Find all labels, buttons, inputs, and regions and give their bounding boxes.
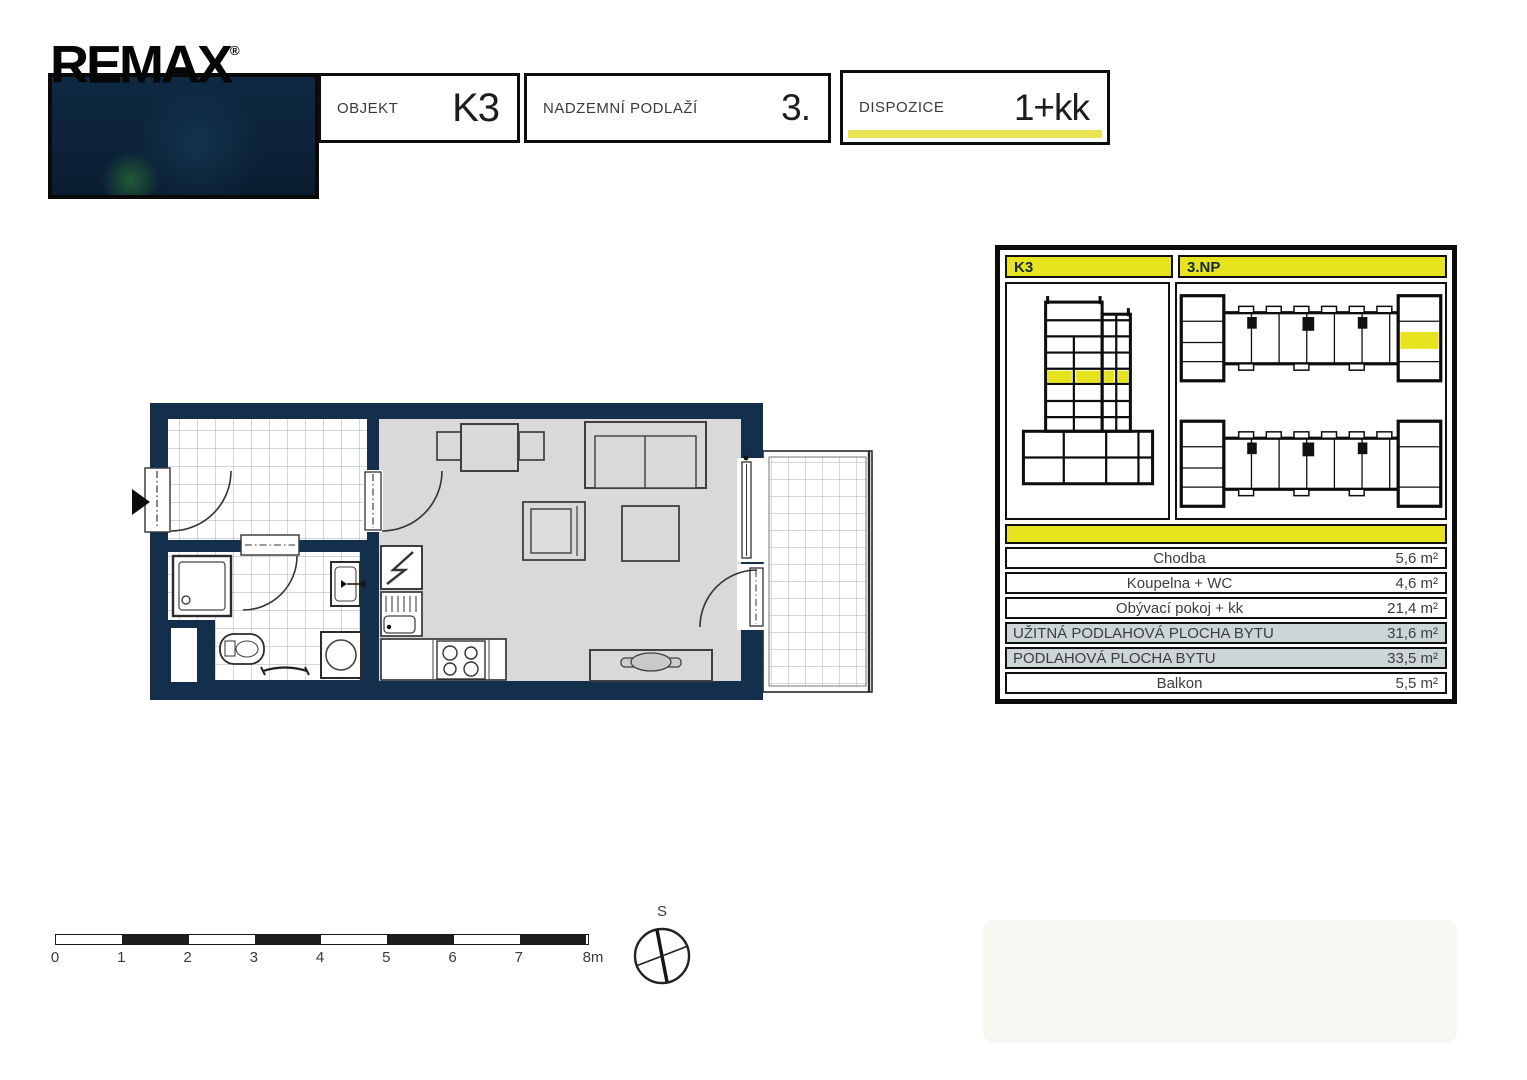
area-table-row: Koupelna + WC 4,6 m² bbox=[1005, 572, 1447, 594]
scale-tick-label: 5 bbox=[382, 949, 390, 966]
area-row-value: 4,6 m² bbox=[1352, 575, 1445, 592]
kitchen-sink-unit bbox=[381, 592, 422, 636]
scale-tick-label: 6 bbox=[448, 949, 456, 966]
header-field-dispozice: DISPOZICE 1+kk bbox=[840, 70, 1110, 145]
area-row-label: Chodba bbox=[1007, 550, 1352, 567]
compass-rose: S bbox=[626, 900, 698, 996]
field-value: 3. bbox=[781, 87, 810, 129]
toilet bbox=[220, 634, 264, 664]
washbasin bbox=[331, 562, 365, 606]
scale-ticks: 012345678m bbox=[55, 949, 589, 971]
scale-segment bbox=[520, 935, 586, 944]
washing-machine bbox=[321, 632, 361, 678]
scale-tick-label: 0 bbox=[51, 949, 59, 966]
area-row-value: 31,6 m² bbox=[1352, 625, 1445, 642]
highlighted-unit bbox=[1400, 332, 1438, 349]
remax-logo: REMAX® bbox=[50, 39, 240, 92]
field-label: OBJEKT bbox=[337, 100, 398, 117]
area-row-label: PODLAHOVÁ PLOCHA BYTU bbox=[1007, 650, 1352, 667]
armchair bbox=[523, 502, 585, 560]
apartment-floor-plan bbox=[125, 394, 877, 710]
kitchen-counter bbox=[381, 639, 506, 680]
area-table-row: Chodba 5,6 m² bbox=[1005, 547, 1447, 569]
scale-tick-label: 1 bbox=[117, 949, 125, 966]
floorplate-cell bbox=[1175, 282, 1447, 520]
area-row-label: Obývací pokoj + kk bbox=[1007, 600, 1352, 617]
floorplan-sheet: REMAX® OBJEKT K3 NADZEMNÍ PODLAŽÍ 3. DIS… bbox=[0, 0, 1527, 1080]
area-table: Chodba 5,6 m² Koupelna + WC 4,6 m² Obýva… bbox=[1005, 544, 1447, 694]
unit-info-panel: K3 3.NP bbox=[995, 245, 1457, 704]
fridge bbox=[381, 546, 422, 589]
shower bbox=[173, 556, 231, 616]
scale-segment bbox=[122, 935, 188, 944]
header-field-objekt: OBJEKT K3 bbox=[318, 73, 520, 143]
scale-bar: 012345678m bbox=[55, 934, 589, 971]
side-table bbox=[622, 506, 679, 561]
building-label-cell: K3 bbox=[1005, 255, 1173, 278]
shaft-niche bbox=[171, 628, 197, 682]
area-row-label: Koupelna + WC bbox=[1007, 575, 1352, 592]
field-value: 1+kk bbox=[1014, 87, 1089, 129]
dining-table bbox=[461, 424, 518, 471]
scale-segment bbox=[255, 935, 321, 944]
area-row-value: 33,5 m² bbox=[1352, 650, 1445, 667]
header-field-podlazi: NADZEMNÍ PODLAŽÍ 3. bbox=[524, 73, 831, 143]
scale-tick-label: 4 bbox=[316, 949, 324, 966]
chair bbox=[519, 432, 544, 460]
scale-tick-label: 7 bbox=[515, 949, 523, 966]
north-label: S bbox=[657, 903, 667, 920]
floorplate-diagrams bbox=[1177, 289, 1445, 513]
scale-segment bbox=[454, 935, 520, 944]
registered-mark: ® bbox=[230, 43, 240, 58]
faint-watermark-rect bbox=[983, 920, 1457, 1042]
area-table-row: Obývací pokoj + kk 21,4 m² bbox=[1005, 597, 1447, 619]
field-label: DISPOZICE bbox=[859, 99, 944, 116]
scale-segment bbox=[189, 935, 255, 944]
scale-segment bbox=[387, 935, 453, 944]
area-row-label: UŽITNÁ PODLAHOVÁ PLOCHA BYTU bbox=[1007, 625, 1352, 642]
balcony bbox=[763, 451, 872, 692]
field-value: K3 bbox=[452, 86, 499, 131]
window bbox=[737, 456, 765, 562]
panel-header: K3 3.NP bbox=[1005, 255, 1447, 278]
scale-tick-label: 3 bbox=[250, 949, 258, 966]
area-row-value: 5,5 m² bbox=[1352, 675, 1445, 692]
area-table-row: Balkon 5,5 m² bbox=[1005, 672, 1447, 694]
scale-tick-label: 2 bbox=[183, 949, 191, 966]
scale-segment bbox=[321, 935, 387, 944]
scale-tick-label: 8m bbox=[583, 949, 604, 966]
field-label: NADZEMNÍ PODLAŽÍ bbox=[543, 100, 698, 117]
sideboard-tv bbox=[590, 650, 712, 681]
floor-label-cell: 3.NP bbox=[1178, 255, 1447, 278]
area-row-label: Balkon bbox=[1007, 675, 1352, 692]
scale-segments bbox=[55, 934, 589, 945]
area-table-row: PODLAHOVÁ PLOCHA BYTU 33,5 m² bbox=[1005, 647, 1447, 669]
area-row-value: 5,6 m² bbox=[1352, 550, 1445, 567]
sofa bbox=[585, 422, 706, 488]
area-row-value: 21,4 m² bbox=[1352, 600, 1445, 617]
chair bbox=[437, 432, 462, 460]
yellow-divider-bar bbox=[1005, 524, 1447, 544]
area-table-row: UŽITNÁ PODLAHOVÁ PLOCHA BYTU 31,6 m² bbox=[1005, 622, 1447, 644]
scale-segment bbox=[56, 935, 122, 944]
building-elevation-diagram bbox=[1017, 290, 1159, 512]
building-elevation-cell bbox=[1005, 282, 1170, 520]
hallway-floor bbox=[168, 419, 367, 540]
yellow-underline bbox=[848, 130, 1102, 138]
